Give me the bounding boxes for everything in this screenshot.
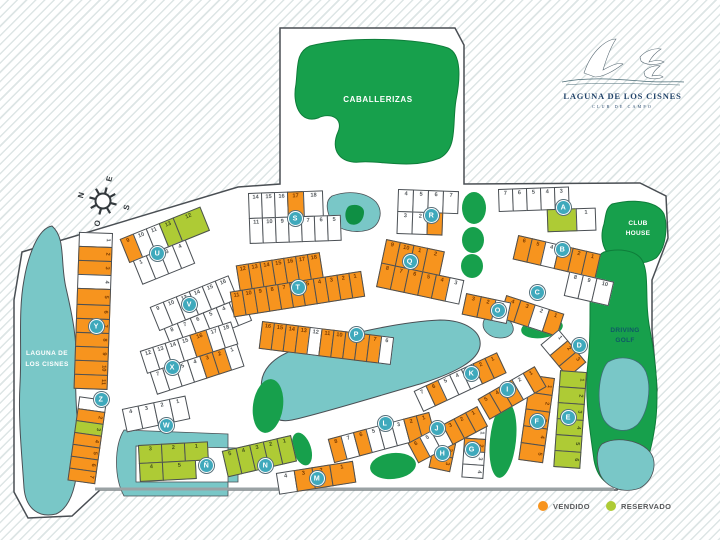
reservado-dot-icon xyxy=(606,501,616,511)
compass-n: N xyxy=(76,191,86,199)
block-Z: 1234567 xyxy=(68,396,106,483)
block-label-I: I xyxy=(500,382,515,397)
block-P: 161514131211109876 xyxy=(259,322,393,365)
lot-E-6[interactable]: 6 xyxy=(553,450,581,469)
lot-R-7[interactable]: 7 xyxy=(442,191,459,215)
caballerizas-label: CABALLERIZAS xyxy=(318,95,438,104)
block-Ñ: 32145 xyxy=(138,442,209,482)
lot-G-4[interactable]: 4 xyxy=(461,463,484,479)
block-label-N: N xyxy=(258,458,273,473)
block-label-R: R xyxy=(424,208,439,223)
block-label-E: E xyxy=(561,410,576,425)
lot-S-5[interactable]: 5 xyxy=(327,215,342,241)
swans-icon xyxy=(556,33,689,89)
lot-P-6[interactable]: 6 xyxy=(378,336,394,365)
compass-o: O xyxy=(92,219,102,227)
block-label-W: W xyxy=(159,418,174,433)
block-label-J: J xyxy=(430,421,445,436)
lot-Z-7[interactable]: 7 xyxy=(67,468,97,485)
block-label-F: F xyxy=(530,414,545,429)
block-label-V: V xyxy=(182,297,197,312)
logo-subtitle: CLUB DE CAMPO xyxy=(592,104,653,109)
lot-F-5[interactable]: 5 xyxy=(518,442,545,463)
block-label-S: S xyxy=(288,211,303,226)
lot-Ñ-5[interactable]: 5 xyxy=(162,460,197,481)
laguna-label: LAGUNA DE LOS CISNES xyxy=(20,348,74,370)
block-label-M: M xyxy=(310,471,325,486)
lot-A-1[interactable]: 1 xyxy=(576,208,597,232)
vendido-label: VENDIDO xyxy=(553,502,590,511)
lot-M-1[interactable]: 1 xyxy=(329,461,356,486)
block-label-H: H xyxy=(435,446,450,461)
block-label-Ñ: Ñ xyxy=(199,458,214,473)
compass-s: S xyxy=(122,203,132,211)
lot-W-1[interactable]: 1 xyxy=(169,396,191,423)
driving-golf-label: DRIVING GOLF xyxy=(600,326,650,347)
legend-item-reservado: RESERVADO xyxy=(606,501,671,511)
block-label-Y: Y xyxy=(89,319,104,334)
block-label-D: D xyxy=(572,338,587,353)
logo: LAGUNA DE LOS CISNES CLUB DE CAMPO xyxy=(556,33,689,130)
block-label-L: L xyxy=(378,416,393,431)
vendido-dot-icon xyxy=(538,501,548,511)
masterplan-map: 1234567891011Y1234567Z9101113121234U9101… xyxy=(0,0,720,540)
block-W: 4321 xyxy=(122,397,189,433)
lot-B-10[interactable]: 10 xyxy=(591,278,614,306)
block-label-G: G xyxy=(465,442,480,457)
lot-S-18[interactable]: 18 xyxy=(303,190,324,217)
block-label-B: B xyxy=(555,242,570,257)
block-label-C: C xyxy=(530,285,545,300)
logo-title: LAGUNA DE LOS CISNES xyxy=(563,91,681,101)
club-house-label: CLUB HOUSE xyxy=(617,219,659,240)
block-Q: 91012876543 xyxy=(376,240,468,304)
block-label-O: O xyxy=(491,303,506,318)
compass-e: E xyxy=(104,175,114,183)
block-label-K: K xyxy=(464,366,479,381)
block-label-U: U xyxy=(150,246,165,261)
block-label-A: A xyxy=(556,200,571,215)
lot-Ñ-4[interactable]: 4 xyxy=(139,462,164,482)
lot-Y-11[interactable]: 11 xyxy=(74,374,109,390)
compass-icon: N S E O xyxy=(70,168,136,234)
block-A: 7654321 xyxy=(498,187,595,234)
block-X: 121314151617187654321 xyxy=(140,323,245,396)
block-label-P: P xyxy=(349,327,364,342)
lot-T-18[interactable]: 18 xyxy=(307,252,324,280)
reservado-label: RESERVADO xyxy=(621,502,671,511)
block-label-Z: Z xyxy=(94,392,109,407)
block-label-T: T xyxy=(291,280,306,295)
block-Y: 1234567891011 xyxy=(74,232,112,389)
block-label-Q: Q xyxy=(403,254,418,269)
legend: VENDIDO RESERVADO xyxy=(538,501,671,511)
legend-item-vendido: VENDIDO xyxy=(538,501,590,511)
block-label-X: X xyxy=(165,360,180,375)
lot-T-1[interactable]: 1 xyxy=(348,271,365,299)
